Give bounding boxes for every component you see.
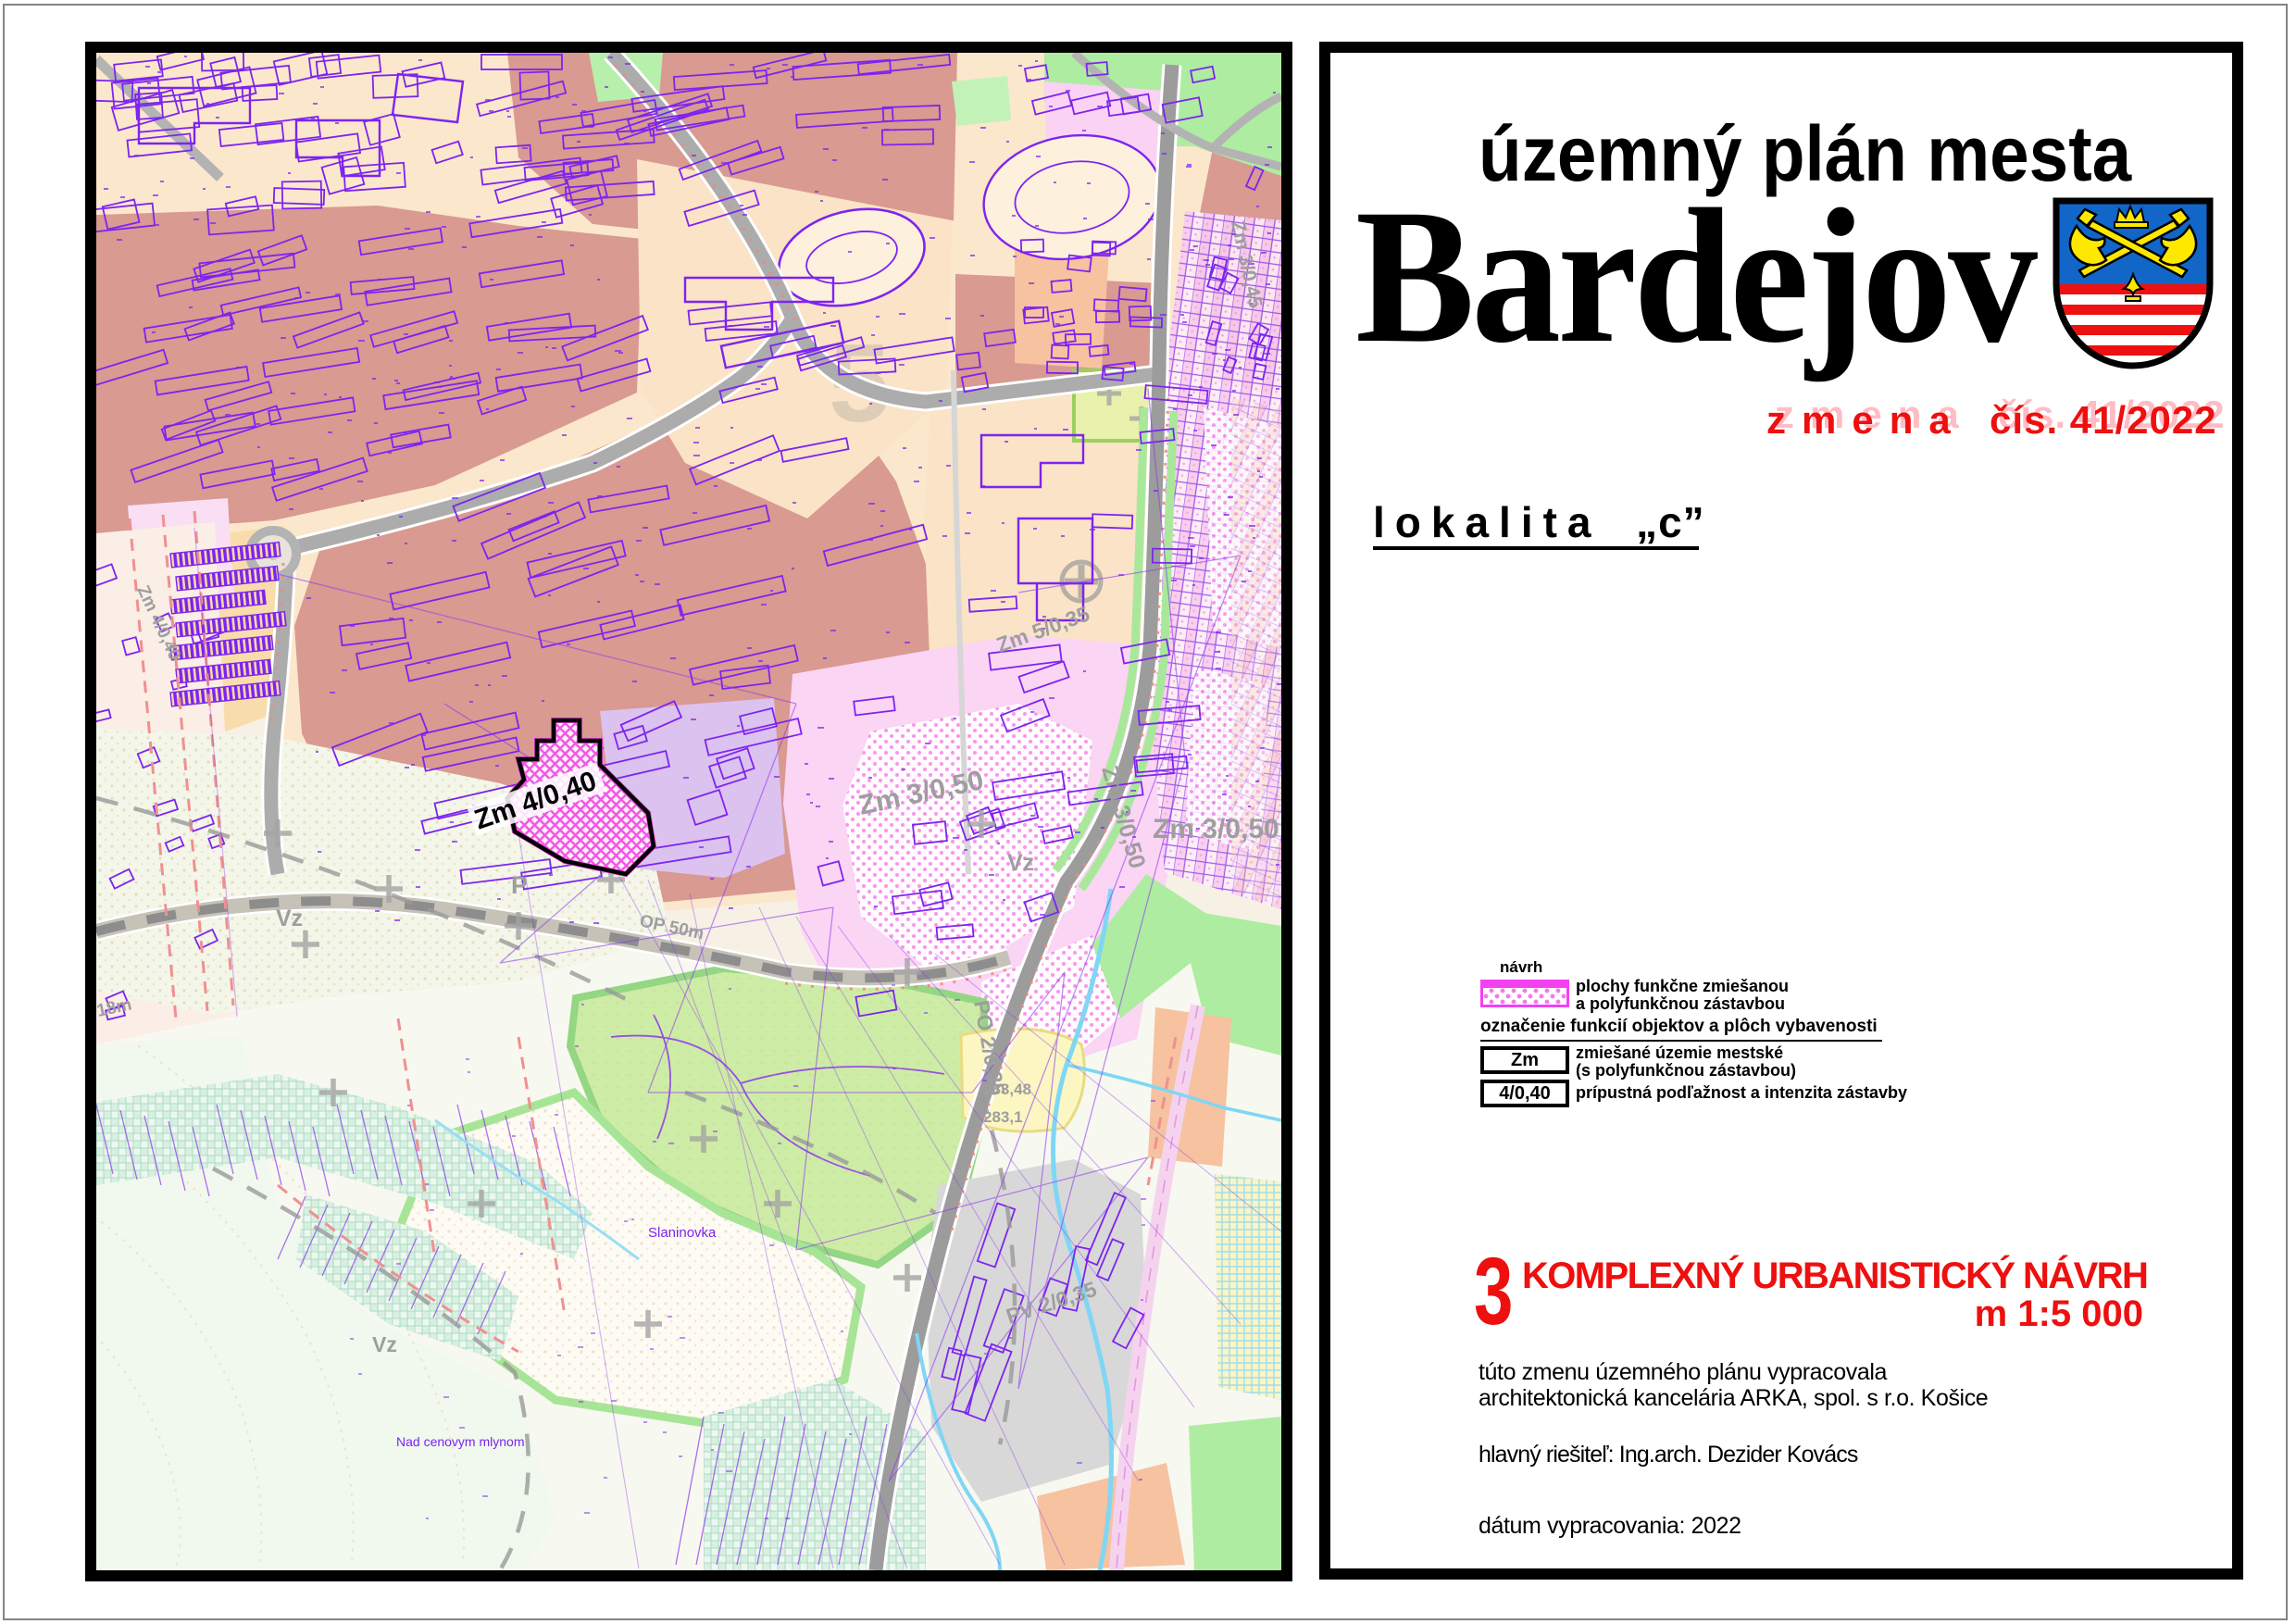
svg-text:283,48: 283,48: [983, 1081, 1031, 1098]
svg-text:Zm 3/0,50: Zm 3/0,50: [1153, 814, 1279, 844]
svg-text:Vz: Vz: [372, 1332, 397, 1356]
svg-text:Slaninovka: Slaninovka: [648, 1225, 717, 1241]
svg-text:P: P: [511, 871, 528, 899]
svg-text:Vz: Vz: [276, 906, 303, 931]
svg-text:Vz: Vz: [1007, 850, 1034, 876]
svg-text:283,1: 283,1: [983, 1108, 1023, 1126]
svg-text:Nad cenovym mlynom: Nad cenovym mlynom: [396, 1434, 525, 1449]
